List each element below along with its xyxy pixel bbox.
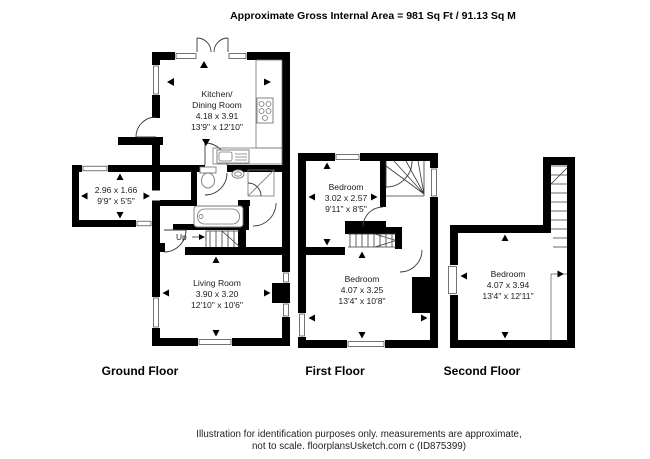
room-imperial: 13'9" x 12'10" (191, 122, 243, 132)
first-floor-plan: Bedroom 3.02 x 2.57 9'11" x 8'5" Bedroom… (298, 153, 438, 348)
room-imperial: 13'4" x 12'11" (482, 291, 533, 301)
annex-room-label: 2.96 x 1.66 9'9" x 5'5" (95, 185, 138, 206)
window (152, 297, 160, 328)
window (136, 220, 152, 227)
second-floor-plan: Bedroom 4.07 x 3.94 13'4" x 12'11" (447, 157, 575, 348)
room-metric: 4.18 x 3.91 (196, 111, 239, 121)
bedroom-second-label: Bedroom 4.07 x 3.94 13'4" x 12'11" (482, 269, 533, 301)
stair-guard-line (551, 274, 567, 340)
second-walls (450, 157, 575, 348)
chimney-breast (272, 283, 290, 303)
hall-door-arc (253, 203, 276, 226)
bedroom-door-arc (400, 250, 422, 272)
ground-stairs (192, 231, 240, 247)
room-metric: 4.07 x 3.94 (487, 280, 530, 290)
bathroom-fixtures (194, 167, 274, 227)
sink-icon (217, 150, 249, 163)
stove-icon (257, 98, 273, 123)
french-door-leaves (197, 38, 228, 52)
ground-floor-plan: Kitchen/ Dining Room 4.18 x 3.91 13'9" x… (72, 38, 290, 346)
shower-icon (248, 170, 274, 196)
second-stairs (551, 166, 567, 340)
chimney-breast (412, 277, 438, 313)
window (335, 153, 360, 161)
living-room-label: Living Room 3.90 x 3.20 12'10" x 10'6" (191, 278, 243, 310)
room-name: Bedroom (329, 182, 364, 192)
room-name: Living Room (193, 278, 241, 288)
window (175, 52, 197, 60)
kitchen-dining-label: Kitchen/ Dining Room 4.18 x 3.91 13'9" x… (191, 89, 243, 132)
first-floor-label: First Floor (305, 364, 365, 378)
disclaimer-line2: not to scale. floorplansUsketch.com c (I… (252, 441, 466, 452)
room-name: Bedroom (345, 274, 380, 284)
first-walls (298, 153, 438, 348)
floorplan-page: Approximate Gross Internal Area = 981 Sq… (0, 0, 650, 459)
first-doors (363, 161, 422, 272)
bedroom-small-label: Bedroom 3.02 x 2.57 9'11" x 8'5" (325, 182, 368, 214)
front-door-opening (152, 118, 160, 137)
room-imperial: 9'11" x 8'5" (325, 204, 367, 214)
window (82, 165, 108, 172)
toilet-icon (200, 167, 216, 188)
ground-floor-label: Ground Floor (102, 364, 179, 378)
room-metric: 3.02 x 2.57 (325, 193, 368, 203)
bathtub-icon (194, 206, 243, 227)
window (152, 65, 160, 95)
gross-internal-area-title: Approximate Gross Internal Area = 981 Sq… (230, 10, 516, 22)
room-metric: 2.96 x 1.66 (95, 185, 138, 195)
room-imperial: 12'10" x 10'6" (191, 300, 243, 310)
second-floor-label: Second Floor (444, 364, 521, 378)
disclaimer-line1: Illustration for identification purposes… (196, 429, 521, 440)
room-name: Dining Room (192, 100, 242, 110)
room-name: Kitchen/ (201, 89, 233, 99)
french-door-arc (197, 38, 211, 52)
basin-icon (232, 170, 244, 178)
floorplan-canvas: Approximate Gross Internal Area = 981 Sq… (0, 0, 650, 459)
french-door-opening (197, 52, 228, 60)
window (447, 265, 458, 295)
up-arrow-icon (199, 234, 205, 240)
window (347, 340, 385, 348)
up-label: Up (176, 232, 187, 242)
first-stairs (348, 234, 396, 247)
window (298, 313, 306, 337)
room-imperial: 9'9" x 5'5" (97, 196, 135, 206)
second-openings (447, 265, 458, 295)
window (282, 272, 290, 283)
room-metric: 3.90 x 3.20 (196, 289, 239, 299)
bedroom-large-label: Bedroom 4.07 x 3.25 13'4" x 10'8" (338, 274, 385, 306)
room-metric: 4.07 x 3.25 (341, 285, 384, 295)
window (198, 338, 232, 346)
window (430, 168, 438, 197)
window (228, 52, 247, 60)
room-name: Bedroom (491, 269, 526, 279)
room-imperial: 13'4" x 10'8" (338, 296, 385, 306)
french-door-arc (214, 38, 228, 52)
window (282, 303, 290, 317)
annex-opening (152, 190, 160, 201)
